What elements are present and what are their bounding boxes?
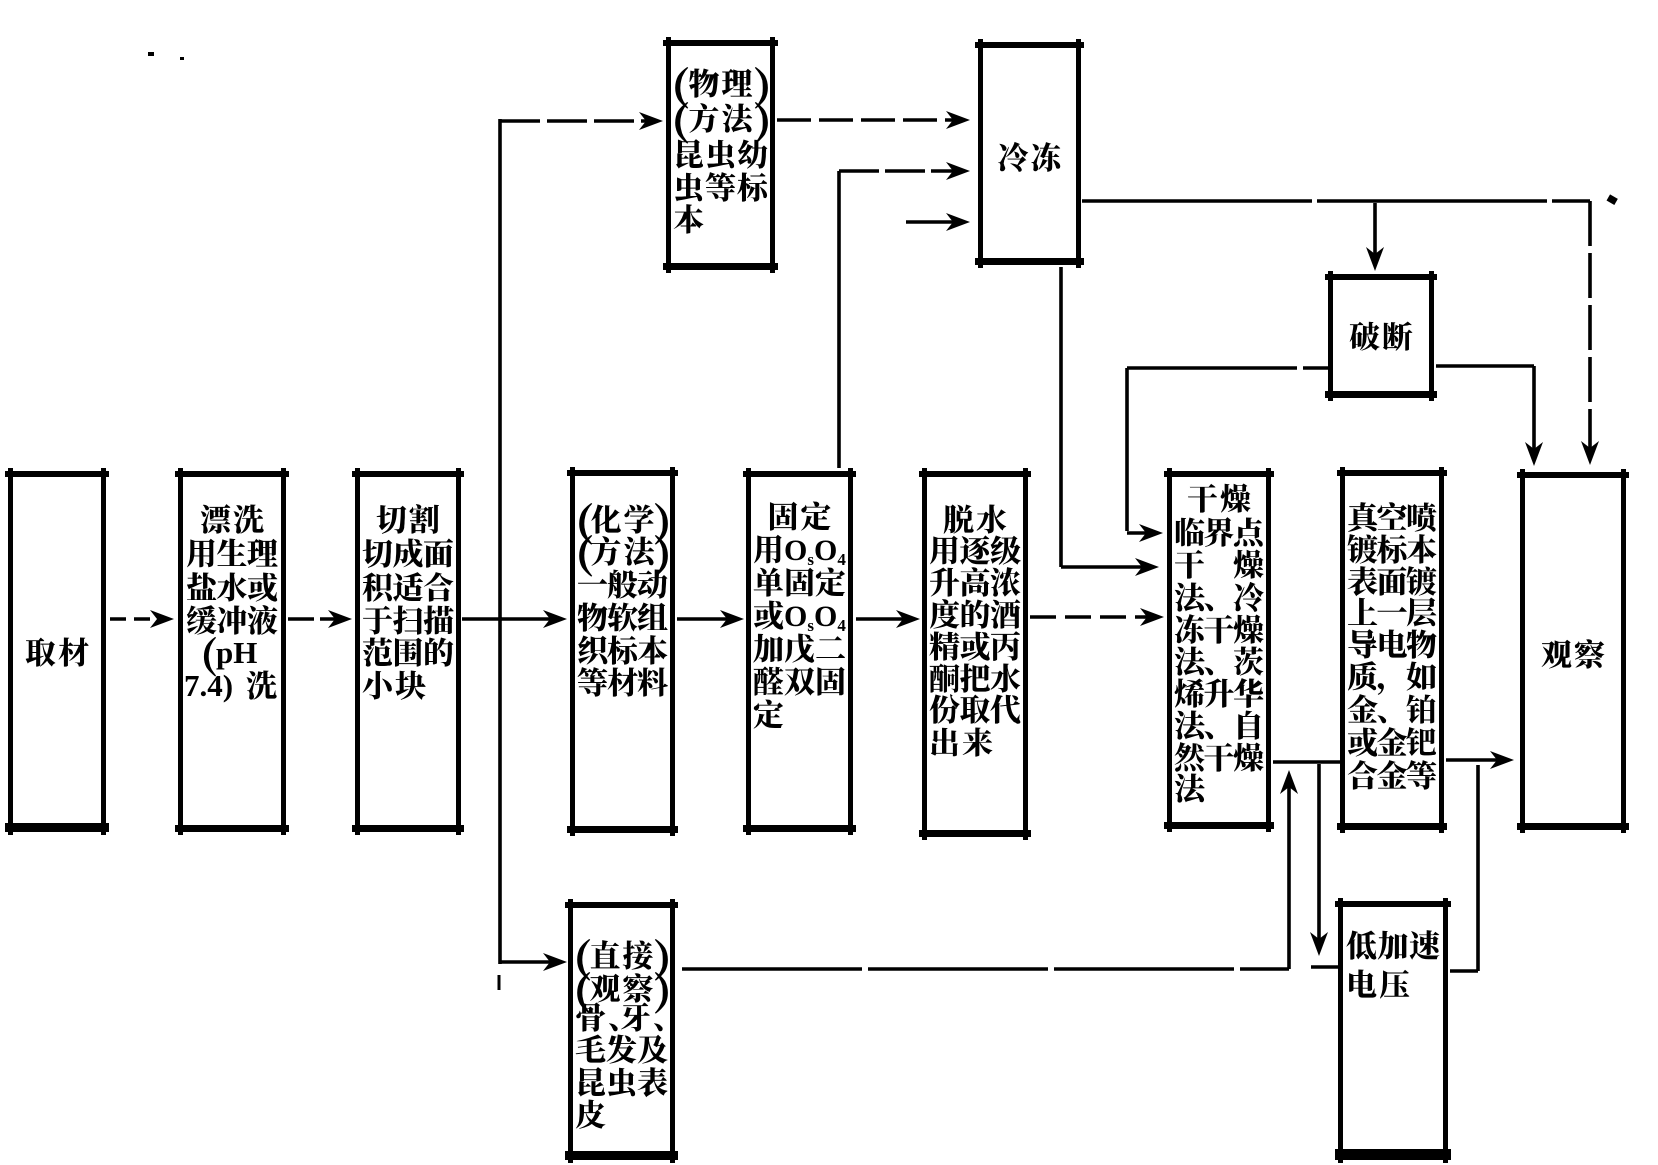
svg-text:OsO4: OsO4 [784,534,846,569]
svg-text:pH: pH [216,635,257,670]
svg-text:OsO4: OsO4 [784,600,846,635]
svg-text:7.4): 7.4) [184,668,233,703]
